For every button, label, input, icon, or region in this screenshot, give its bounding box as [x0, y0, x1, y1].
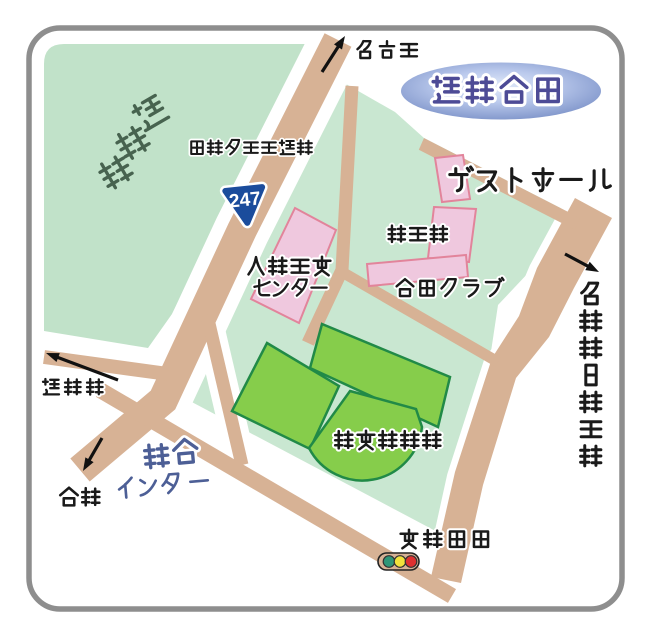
- svg-text:247: 247: [228, 188, 262, 212]
